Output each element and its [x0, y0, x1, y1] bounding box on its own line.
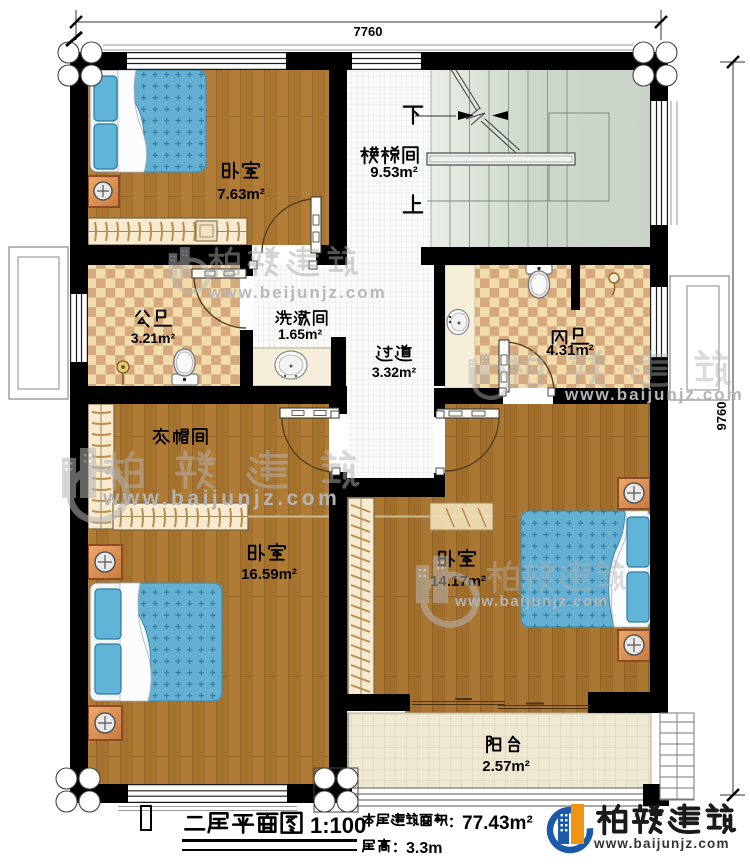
svg-text:3.3m: 3.3m — [406, 840, 442, 857]
svg-text:3.21m²: 3.21m² — [131, 330, 176, 346]
svg-text:www.baijunjz.com: www.baijunjz.com — [454, 593, 608, 610]
svg-text:www.baijunjz.com: www.baijunjz.com — [102, 487, 340, 510]
svg-text:2.57m²: 2.57m² — [482, 758, 530, 775]
svg-text:：: ： — [392, 839, 406, 855]
svg-text:7.63m²: 7.63m² — [217, 186, 265, 203]
svg-text:：: ： — [448, 814, 462, 830]
svg-text:9.53m²: 9.53m² — [370, 164, 418, 181]
svg-text:www.baijunjz.com: www.baijunjz.com — [564, 385, 744, 404]
svg-text:www.beijunjz.com: www.beijunjz.com — [207, 283, 387, 302]
svg-text:9760: 9760 — [714, 402, 729, 431]
svg-text:77.43m²: 77.43m² — [462, 813, 533, 834]
svg-text:www.baijunjz.com: www.baijunjz.com — [593, 836, 730, 851]
svg-text:7760: 7760 — [354, 24, 383, 39]
svg-text:1:100: 1:100 — [310, 813, 366, 838]
svg-text:1.65m²: 1.65m² — [278, 326, 323, 342]
svg-text:3.32m²: 3.32m² — [372, 364, 417, 380]
svg-text:16.59m²: 16.59m² — [241, 566, 297, 583]
